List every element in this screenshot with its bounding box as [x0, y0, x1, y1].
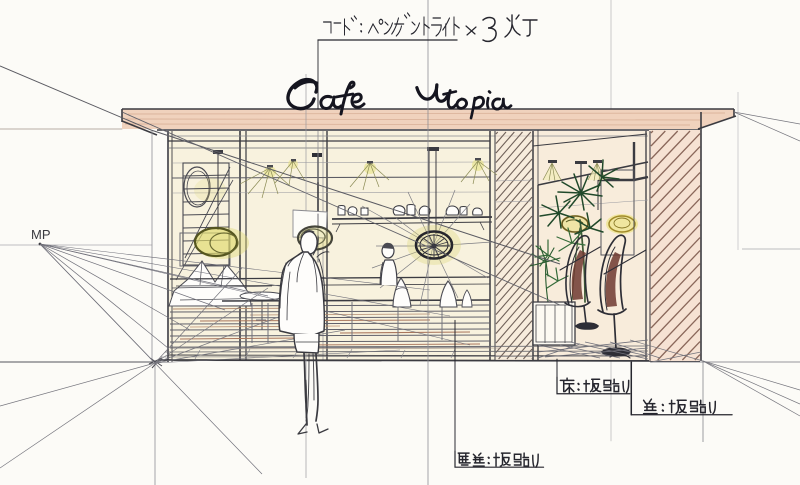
svg-text:MP: MP	[31, 227, 51, 242]
